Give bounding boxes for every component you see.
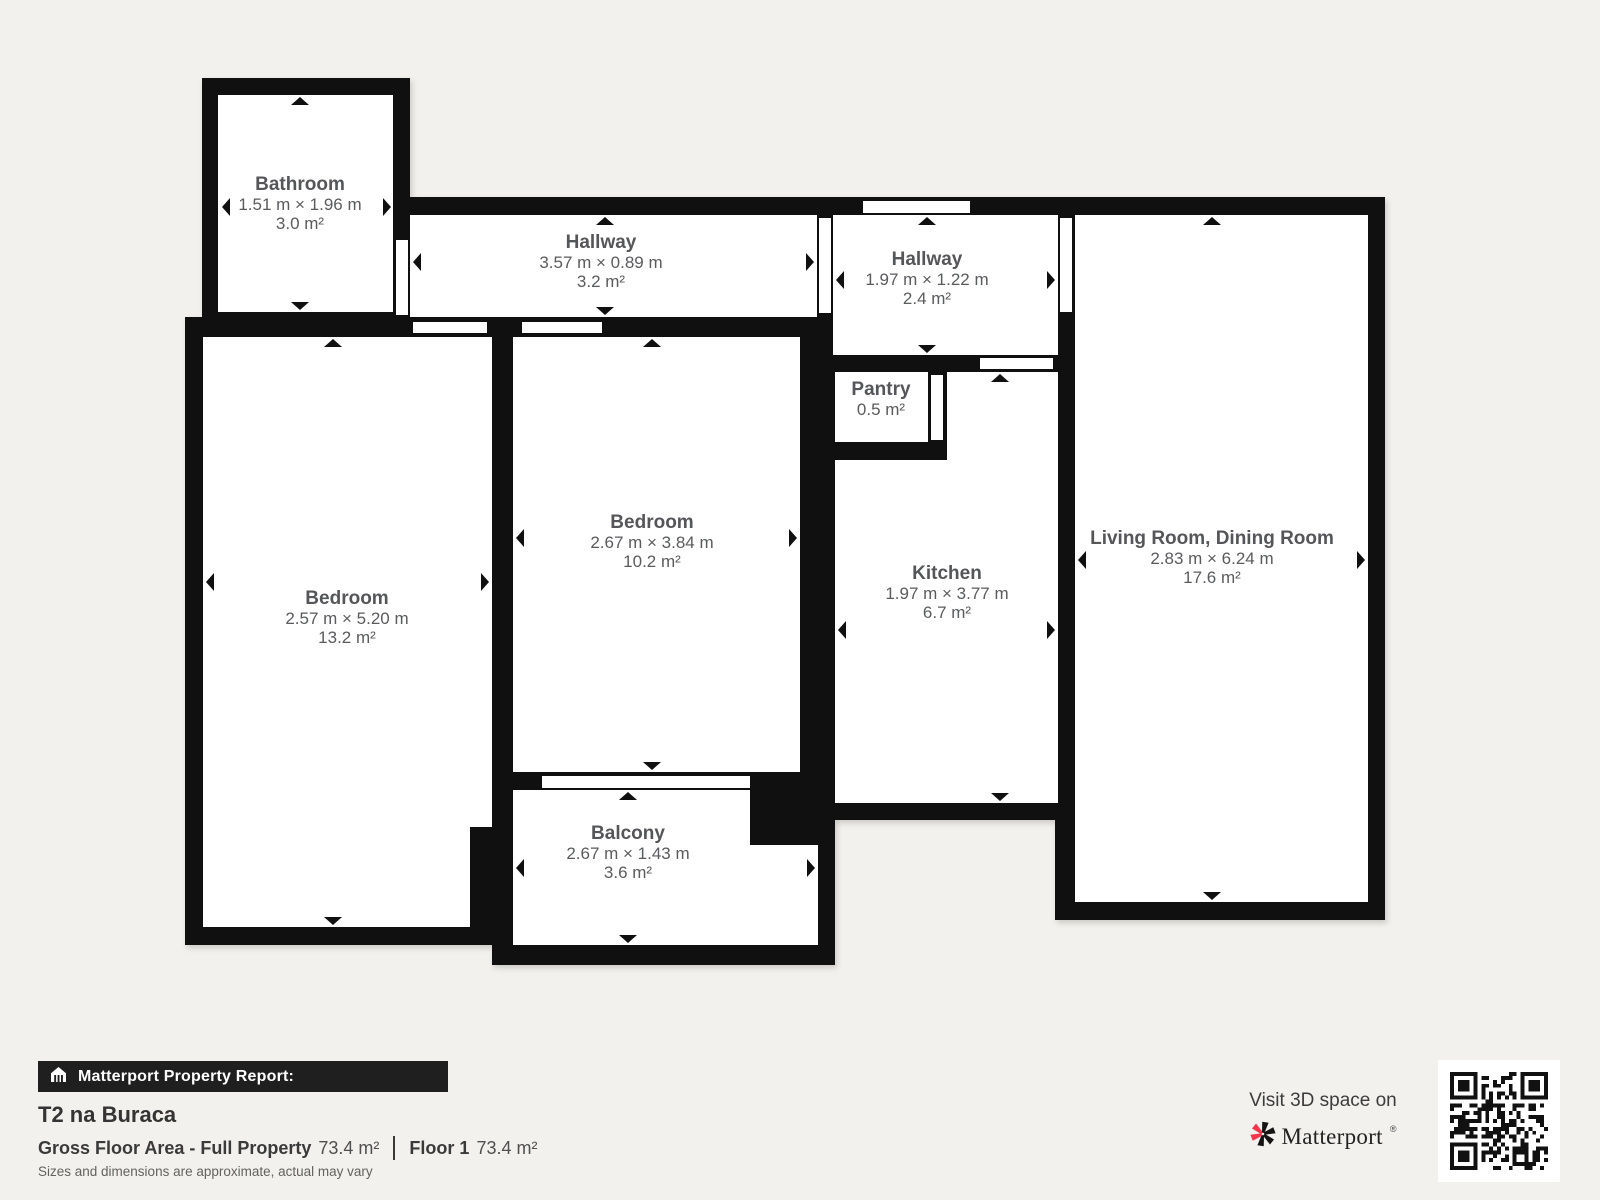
dimension-arrow [1047, 271, 1055, 289]
dimension-arrow [291, 97, 309, 105]
room-pantry [835, 372, 928, 442]
dimension-arrow [324, 917, 342, 925]
dimension-arrow [918, 345, 936, 353]
dimension-arrow [596, 307, 614, 315]
gross-floor-area-line: Gross Floor Area - Full Property 73.4 m²… [38, 1136, 537, 1160]
matterport-pinwheel-icon [1250, 1121, 1276, 1152]
disclaimer-text: Sizes and dimensions are approximate, ac… [38, 1164, 373, 1179]
property-name: T2 na Buraca [38, 1102, 176, 1128]
dimension-arrow [481, 573, 489, 591]
dimension-arrow [516, 859, 524, 877]
dimension-arrow [324, 339, 342, 347]
dimension-arrow [991, 374, 1009, 382]
door-opening-hallway1-hallway2 [819, 218, 831, 313]
dimension-arrow [516, 529, 524, 547]
door-opening-hallway1-bedroom-left [413, 322, 487, 333]
qr-code [1438, 1060, 1560, 1182]
dimension-arrow [619, 792, 637, 800]
floor-value: 73.4 m² [476, 1138, 537, 1159]
door-opening-pantry [931, 375, 943, 440]
trademark-mark: ® [1390, 1124, 1397, 1134]
matterport-wordmark: Matterport [1282, 1124, 1383, 1150]
dimension-arrow [596, 217, 614, 225]
room-living-room [1075, 215, 1368, 902]
room-bedroom-middle [513, 337, 800, 772]
visit-3d-text: Visit 3D space on [1232, 1090, 1414, 1112]
door-opening-entry [863, 201, 970, 213]
dimension-arrow [836, 271, 844, 289]
dimension-arrow [413, 253, 421, 271]
dimension-arrow [206, 573, 214, 591]
promo-block: Visit 3D space on Matterport® [1232, 1090, 1414, 1152]
dimension-arrow [222, 198, 230, 216]
floor-label: Floor 1 [409, 1138, 469, 1159]
report-header-bar: Matterport Property Report: [38, 1061, 448, 1092]
report-bar-label: Matterport Property Report: [78, 1068, 294, 1086]
matterport-logo: Matterport® [1232, 1121, 1414, 1152]
divider [393, 1136, 395, 1160]
room-hallway-1 [410, 215, 817, 317]
dimension-arrow [383, 198, 391, 216]
gross-area-label: Gross Floor Area - Full Property [38, 1138, 311, 1159]
dimension-arrow [1357, 551, 1365, 569]
room-hallway-2 [833, 215, 1058, 355]
dimension-arrow [1047, 621, 1055, 639]
dimension-arrow [619, 935, 637, 943]
dimension-arrow [838, 621, 846, 639]
dimension-arrow [918, 217, 936, 225]
dimension-arrow [807, 859, 815, 877]
house-icon [49, 1066, 68, 1088]
gross-area-value: 73.4 m² [318, 1138, 379, 1159]
door-opening-hallway2-living [1060, 218, 1072, 312]
dimension-arrow [291, 302, 309, 310]
floor-plan: Bathroom 1.51 m × 1.96 m 3.0 m² Hallway … [0, 0, 1600, 1200]
dimension-arrow [789, 529, 797, 547]
wall-step-balcony [750, 772, 835, 845]
window-bedroom-balcony [542, 776, 750, 788]
dimension-arrow [643, 339, 661, 347]
wall-step-bedroom-left [470, 827, 492, 927]
door-opening-bathroom [396, 240, 408, 315]
dimension-arrow [643, 762, 661, 770]
room-bathroom [218, 95, 393, 312]
dimension-arrow [1203, 217, 1221, 225]
dimension-arrow [991, 793, 1009, 801]
dimension-arrow [806, 253, 814, 271]
dimension-arrow [1203, 892, 1221, 900]
door-opening-hallway2-kitchen [980, 358, 1053, 369]
dimension-arrow [1078, 551, 1086, 569]
door-opening-hallway1-bedroom-middle [522, 322, 602, 333]
room-bedroom-left [203, 337, 492, 927]
